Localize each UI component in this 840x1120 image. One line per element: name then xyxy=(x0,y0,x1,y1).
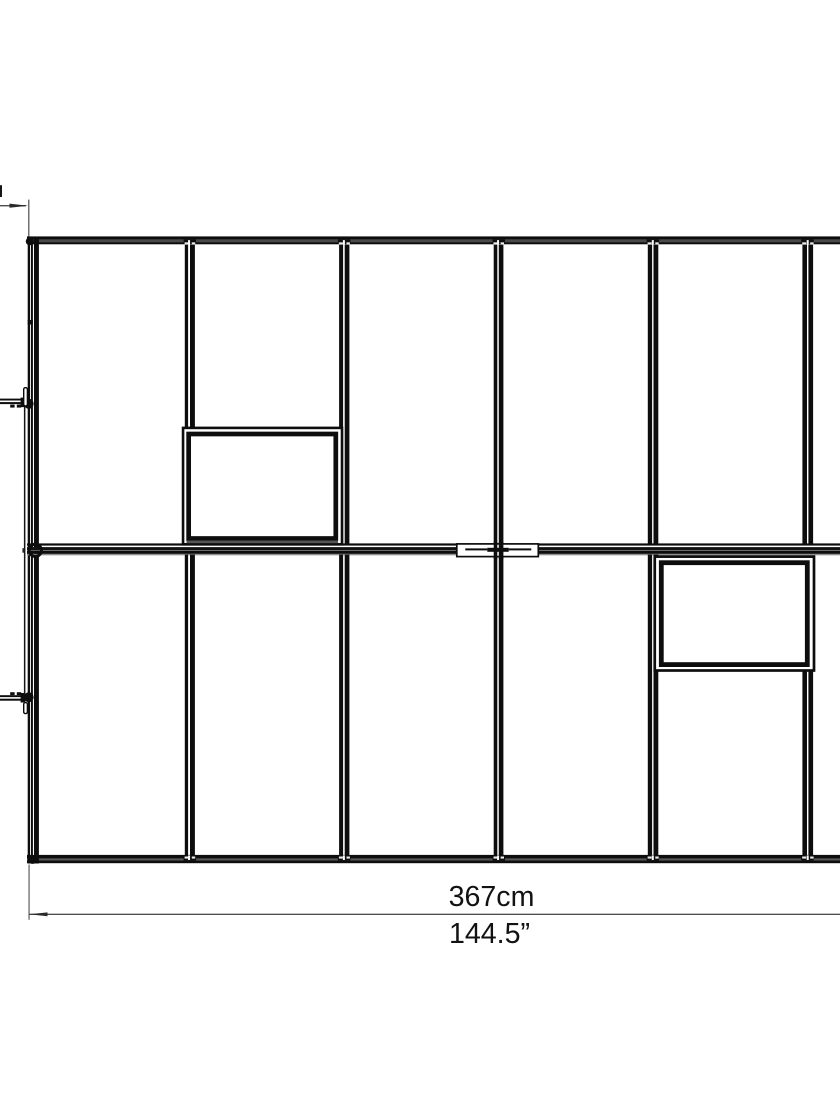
svg-text:367cm: 367cm xyxy=(449,881,535,913)
svg-text:144.5”: 144.5” xyxy=(449,918,530,950)
